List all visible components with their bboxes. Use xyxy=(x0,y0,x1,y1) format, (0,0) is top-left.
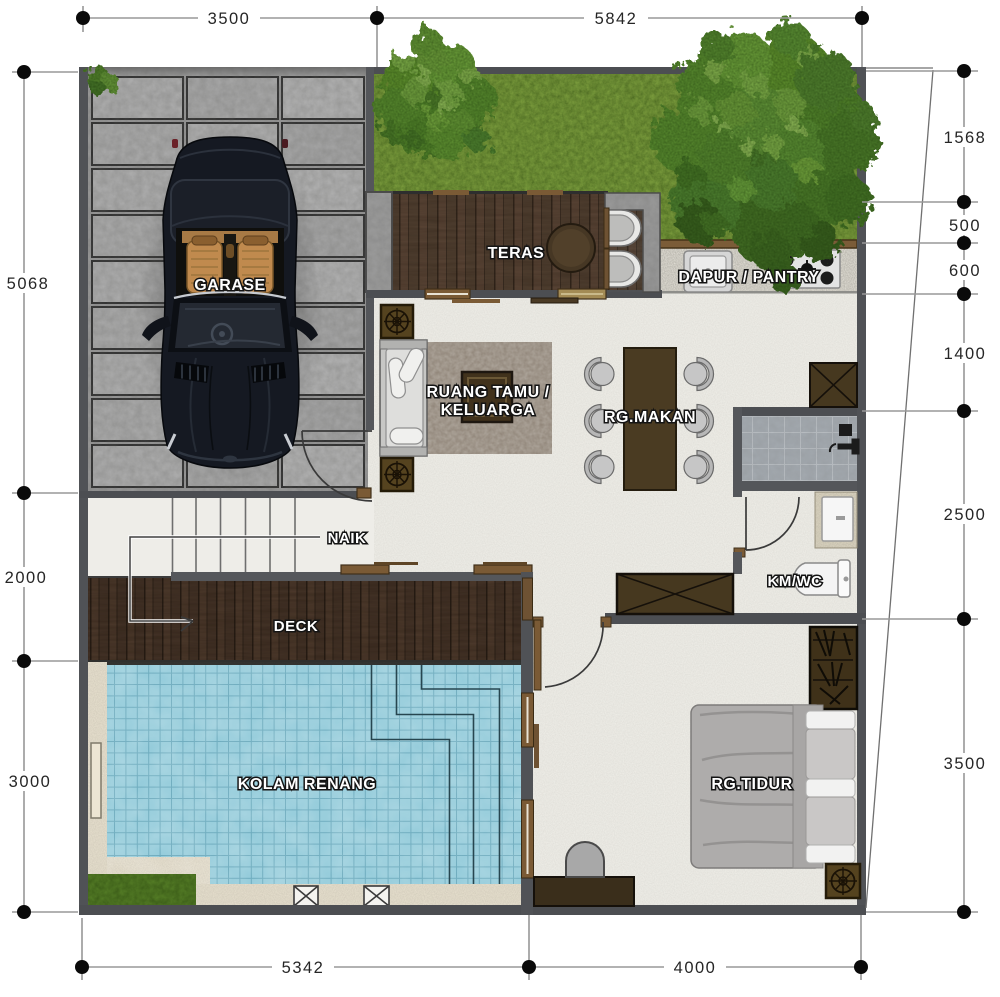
svg-text:3000: 3000 xyxy=(9,773,52,791)
svg-text:2500: 2500 xyxy=(944,506,987,524)
svg-text:DECK: DECK xyxy=(274,618,319,635)
svg-text:GARASE: GARASE xyxy=(194,277,265,294)
svg-text:3500: 3500 xyxy=(944,755,987,773)
svg-text:RG.MAKAN: RG.MAKAN xyxy=(604,409,696,426)
svg-text:NAIK: NAIK xyxy=(328,530,367,547)
svg-text:KM/WC: KM/WC xyxy=(768,573,823,590)
svg-text:RUANG TAMU /: RUANG TAMU / xyxy=(426,384,549,401)
svg-text:3500: 3500 xyxy=(208,10,251,28)
svg-text:KOLAM RENANG: KOLAM RENANG xyxy=(238,776,376,793)
svg-text:DAPUR / PANTRY: DAPUR / PANTRY xyxy=(678,269,819,286)
svg-text:5068: 5068 xyxy=(7,275,50,293)
svg-text:1400: 1400 xyxy=(944,345,987,363)
svg-text:TERAS: TERAS xyxy=(488,245,545,262)
svg-text:RG.TIDUR: RG.TIDUR xyxy=(711,776,792,793)
svg-text:5342: 5342 xyxy=(282,959,325,977)
svg-text:600: 600 xyxy=(949,262,981,280)
svg-text:1568: 1568 xyxy=(944,129,987,147)
svg-text:2000: 2000 xyxy=(5,569,48,587)
svg-text:4000: 4000 xyxy=(674,959,717,977)
svg-text:KELUARGA: KELUARGA xyxy=(441,402,536,419)
svg-text:5842: 5842 xyxy=(595,10,638,28)
svg-text:500: 500 xyxy=(949,217,981,235)
